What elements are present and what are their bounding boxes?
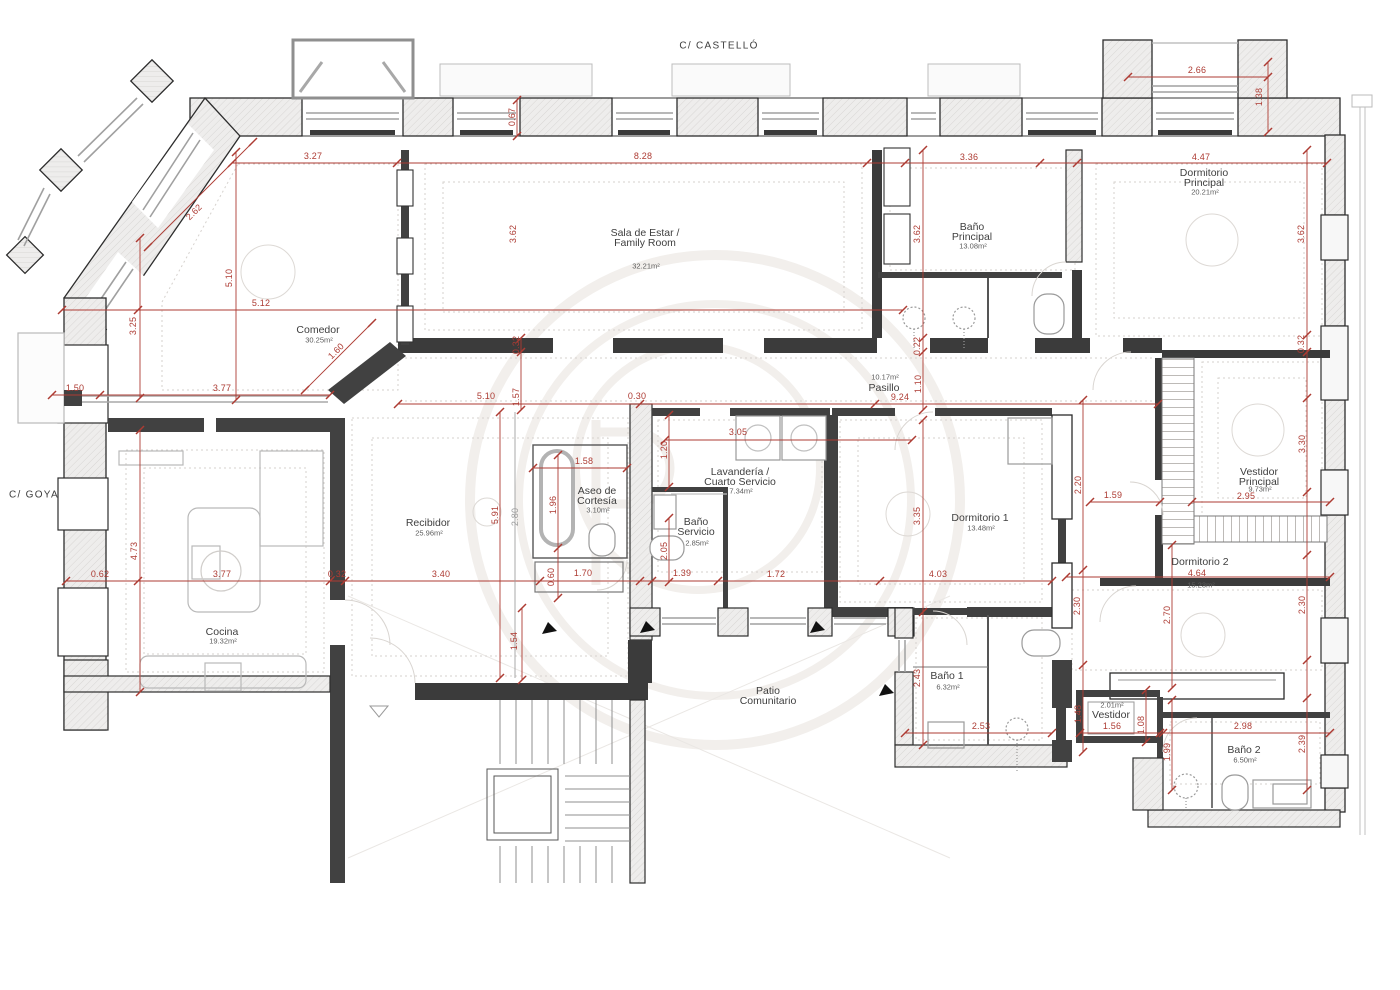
entry-triangle-marker	[370, 706, 388, 717]
floorplan-drawing	[0, 0, 1400, 990]
shutter-pockets	[397, 170, 413, 342]
balcony-rails	[440, 64, 1020, 96]
facade-right	[1321, 95, 1372, 835]
chamfer-corner	[7, 60, 240, 330]
floorplan-page: C/ CASTELLÓ C/ GOYA Comedor30.25m²Sala d…	[0, 0, 1400, 990]
pasillo-top-wall	[398, 338, 1330, 358]
comedor-diagonal-wall	[328, 342, 406, 404]
facade-castello	[190, 40, 1340, 136]
bay-window	[293, 40, 413, 98]
